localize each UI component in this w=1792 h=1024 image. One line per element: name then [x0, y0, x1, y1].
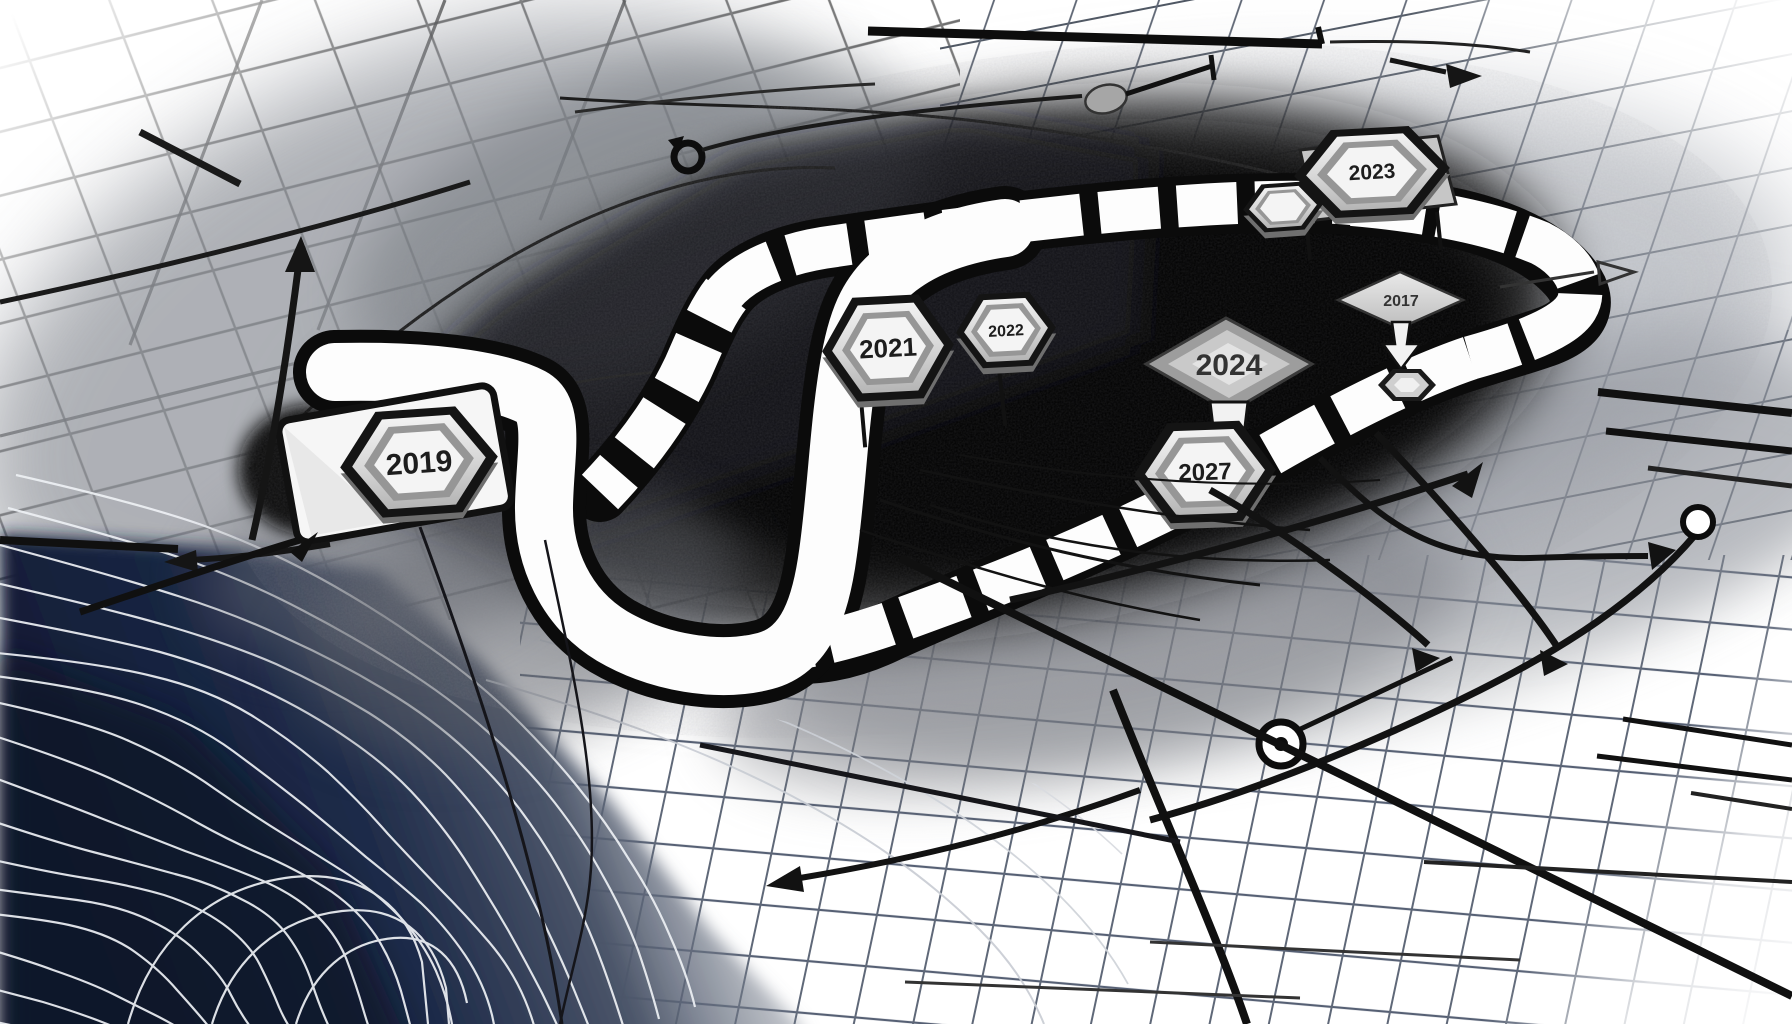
svg-text:2019: 2019 — [385, 445, 454, 483]
svg-text:2024: 2024 — [1196, 349, 1263, 382]
svg-text:2021: 2021 — [858, 332, 917, 365]
svg-text:2022: 2022 — [988, 322, 1025, 341]
svg-text:2017: 2017 — [1383, 293, 1419, 310]
svg-text:2023: 2023 — [1348, 160, 1396, 185]
